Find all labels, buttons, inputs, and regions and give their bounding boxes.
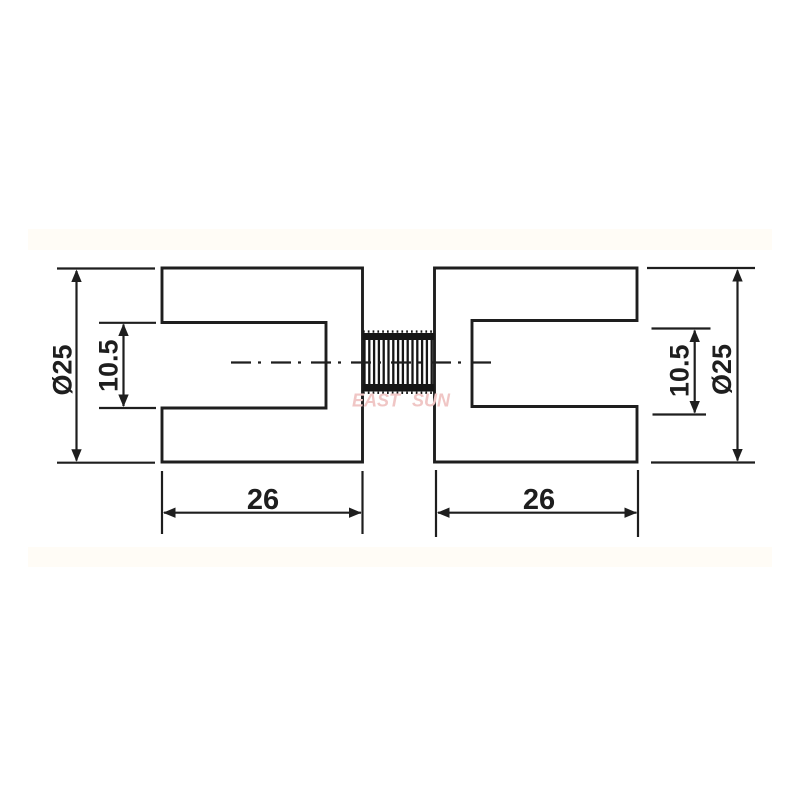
svg-text:Ø25: Ø25 — [48, 344, 78, 395]
svg-text:SUN: SUN — [412, 391, 451, 411]
svg-text:Ø25: Ø25 — [707, 344, 737, 395]
svg-text:10.5: 10.5 — [94, 339, 124, 392]
svg-text:EAST: EAST — [352, 391, 402, 411]
svg-text:26: 26 — [247, 484, 279, 516]
svg-text:10.5: 10.5 — [665, 345, 695, 398]
svg-text:26: 26 — [523, 484, 555, 516]
